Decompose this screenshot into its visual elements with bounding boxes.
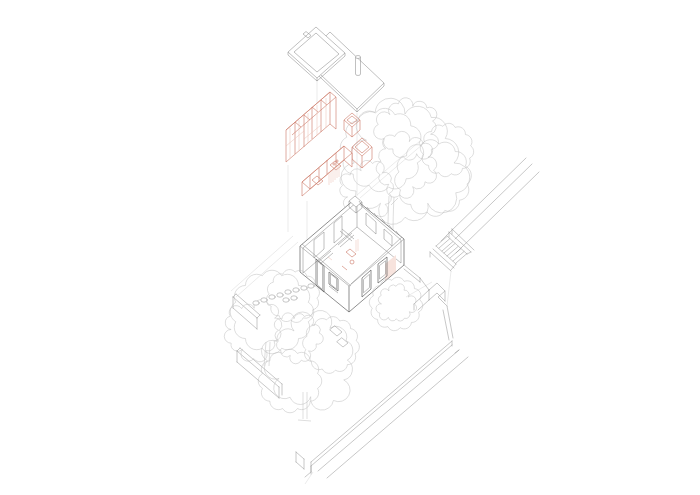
stepping-stones (253, 284, 314, 305)
boundary-wall-southeast (296, 341, 468, 484)
garden-pavers (330, 326, 348, 347)
kitchen-island (302, 146, 352, 196)
garden-tree-upper (213, 262, 322, 372)
axonometric-drawing (0, 0, 700, 495)
drawing-canvas (0, 0, 700, 495)
street-edge (441, 158, 539, 253)
boundary-wall-west (231, 236, 298, 329)
boundary-wall-southwest (237, 348, 282, 398)
storage-box-small (344, 113, 360, 137)
low-garden-wall (404, 265, 429, 290)
storage-box-large (352, 138, 372, 168)
retaining-walls (406, 271, 453, 340)
wardrobe-unit (286, 92, 336, 162)
exterior-staircase (430, 229, 474, 271)
